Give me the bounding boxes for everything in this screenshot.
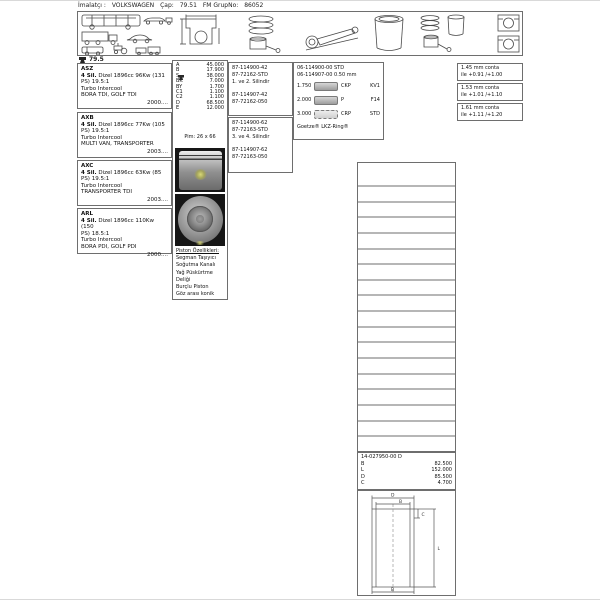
- bore-value: 79.51: [180, 2, 197, 9]
- manufacturer-value: VOLKSWAGEN: [112, 2, 154, 9]
- pin-size-label: Pim: 26 x 66: [173, 134, 227, 140]
- spec-row-empty: [358, 404, 455, 420]
- engine-cylinders: 4 Sil.: [81, 218, 97, 224]
- cylinder-liner-icon: [375, 16, 403, 51]
- engine-desc2: PS) 18.5:1: [81, 231, 168, 238]
- engine-year: 2000....: [81, 100, 168, 107]
- spec-row-empty: [358, 326, 455, 342]
- ring-row: 1.750 CKP KV1: [297, 80, 380, 93]
- engine-desc2: PS) 19.5:1: [81, 176, 168, 183]
- spec-row-empty: [358, 185, 455, 201]
- spec-row-empty: [358, 279, 455, 295]
- spec-row-empty: [358, 263, 455, 279]
- piston-part-number: 87-114900-62: [232, 120, 289, 127]
- piston-kit-icon: [421, 15, 464, 52]
- piston-set-box-2: 87-114900-62 87-72163-STD 3. ve 4. Silin…: [228, 117, 293, 173]
- engine-aspiration: Turbo Intercool: [81, 237, 168, 244]
- ring-set-box: 06-114900-00 STD 06-114907-00 0.50 mm 1.…: [293, 62, 384, 140]
- ring-row: 2.000 P F14: [297, 94, 380, 107]
- spec-row-empty: [358, 341, 455, 357]
- ring-row: 3.000 CRP STD: [297, 108, 380, 121]
- parts-overview-strip: [77, 11, 523, 56]
- piston-feature-item: Deliği: [176, 277, 219, 284]
- piston-part-number-050: 87-114907-42: [232, 92, 289, 99]
- group-value: 86052: [244, 2, 263, 9]
- dim-label-top-inner: B: [399, 499, 402, 505]
- engine-aspiration: Turbo Intercool: [81, 135, 168, 142]
- piston-diagram-icon: [180, 15, 219, 45]
- dim-label-length: L: [438, 546, 441, 552]
- engine-desc2: PS) 19.5:1: [81, 79, 168, 86]
- ring-part-number-050: 87-72163-050: [232, 154, 289, 161]
- spec-row-empty: [358, 310, 455, 326]
- engine-box-axb: AXB 4 Sil. Dizel 1896cc 77Kw (105 PS) 19…: [77, 112, 172, 158]
- engine-code: AXC: [81, 163, 168, 170]
- ring-profile-icon: [314, 82, 338, 91]
- spec-row-empty: [358, 420, 455, 436]
- dim-label-flange: C: [422, 512, 425, 518]
- engine-desc2: PS) 19.5:1: [81, 128, 168, 135]
- piston-features: Piston Özellikleri: Segman Taşıyıcı Soğu…: [176, 248, 219, 298]
- liner-part-number: 14-027950-00 D: [361, 454, 452, 461]
- piston-crown-image: [178, 196, 223, 243]
- bearing-shells-icon: [498, 15, 519, 52]
- liner-dim-row: D85.500: [361, 474, 452, 481]
- liner-spec-table: [357, 162, 456, 452]
- gasket-box-1: 1.45 mm conta ile +0.91 /+1.00: [457, 63, 523, 81]
- car-icon: [127, 35, 152, 43]
- cylinder-liner-drawing: D B C L B: [358, 491, 455, 595]
- engine-desc: Dizel 1896cc 63Kw (85: [98, 170, 161, 176]
- dimension-row: E12.000: [176, 106, 224, 111]
- ring-part-number: 87-72162-STD: [232, 72, 289, 79]
- cylinder-note: 1. ve 2. Silindir: [232, 79, 289, 86]
- engine-models: TRANSPORTER TDI: [81, 189, 168, 196]
- ring-grooves-image: [179, 155, 222, 162]
- engine-year: 2003....: [81, 197, 168, 204]
- spec-row-empty: [358, 294, 455, 310]
- engine-cylinders: 4 Sil.: [81, 170, 97, 176]
- catalog-header: İmalatçı : VOLKSWAGEN Çap: 79.51 FM Grup…: [78, 1, 524, 10]
- bore-label: Çap:: [160, 2, 174, 9]
- gasket-size: 1.61 mm conta: [461, 105, 519, 112]
- gasket-range: ile +1.01 /+1.10: [461, 92, 519, 99]
- piston-features-title: Piston Özellikleri:: [176, 248, 219, 255]
- right-spec-table-rows: [358, 185, 455, 451]
- group-label: FM GrupNo:: [203, 2, 238, 9]
- engine-desc: Dizel 1896cc 77Kw (105: [98, 122, 165, 128]
- ring-stack-icon: [249, 16, 280, 53]
- engine-aspiration: Turbo Intercool: [81, 183, 168, 190]
- spec-row-empty: [358, 388, 455, 404]
- ring-part-number-050: 87-72162-050: [232, 99, 289, 106]
- liner-drawing-box: D B C L B: [357, 490, 456, 596]
- gasket-range: ile +1.11 /+1.20: [461, 112, 519, 119]
- spec-row-empty: [358, 435, 455, 451]
- liner-dim-row: C4.700: [361, 480, 452, 487]
- ring-set-050: 06-114907-00 0.50 mm: [297, 72, 380, 79]
- car-trailer-icon: [144, 18, 172, 24]
- engine-models: BORA TDI, GOLF TDI: [81, 92, 168, 99]
- cylinder-note: 3. ve 4. Silindir: [232, 134, 289, 141]
- ring-set-std: 06-114900-00 STD: [297, 65, 380, 72]
- piston-stamp-icon: [177, 74, 185, 81]
- engine-code: ASZ: [81, 66, 168, 73]
- bus-icon: [82, 15, 140, 29]
- engine-models: MULTI VAN, TRANSPORTER: [81, 141, 168, 148]
- engine-models: BORA PDI, GOLF PDI: [81, 244, 168, 251]
- spec-row-empty: [358, 373, 455, 389]
- engine-year: 2000....: [81, 252, 168, 259]
- piston-part-number-050: 87-114907-62: [232, 147, 289, 154]
- engine-desc: Dizel 1896cc 96Kw (131: [98, 73, 165, 79]
- dim-label-top: D: [391, 493, 395, 499]
- engine-code: ARL: [81, 211, 168, 218]
- spec-row-empty: [358, 357, 455, 373]
- spec-row-empty: [358, 216, 455, 232]
- engine-aspiration: Turbo Intercool: [81, 86, 168, 93]
- bowl-center-image: [196, 215, 203, 222]
- gasket-size: 1.45 mm conta: [461, 65, 519, 72]
- piston-set-box-1: 87-114900-42 87-72162-STD 1. ve 2. Silin…: [228, 62, 293, 116]
- spec-table-header: [358, 163, 455, 185]
- dim-label-bottom: B: [391, 587, 394, 593]
- engine-box-asz: ASZ 4 Sil. Dizel 1896cc 96Kw (131 PS) 19…: [77, 63, 172, 109]
- engine-year: 2003....: [81, 149, 168, 156]
- truck-icon: [82, 32, 117, 45]
- piston-side-photo: [175, 148, 225, 192]
- liner-dim-row: L152.000: [361, 467, 452, 474]
- trailer-truck-icon: [136, 47, 160, 55]
- piston-feature-item: Burçlu Piston: [176, 284, 219, 291]
- engine-cylinders: 4 Sil.: [81, 73, 97, 79]
- gasket-box-2: 1.53 mm conta ile +1.01 /+1.10: [457, 83, 523, 101]
- gasket-box-3: 1.61 mm conta ile +1.11 /+1.20: [457, 103, 523, 121]
- ring-part-number: 87-72163-STD: [232, 127, 289, 134]
- liner-dim-row: B82.500: [361, 461, 452, 468]
- gasket-range: ile +0.91 /+1.00: [461, 72, 519, 79]
- van-icon: [82, 47, 103, 55]
- piston-dimensions-panel: A45.000 B17.900 S38.000 BK7.000 BY1.700 …: [172, 60, 228, 300]
- piston-feature-item: Göz arası konik: [176, 291, 219, 298]
- ring-profile-icon: [314, 96, 338, 105]
- engine-cylinders: 4 Sil.: [81, 122, 97, 128]
- parts-strip-drawing: [78, 12, 522, 55]
- engine-box-axc: AXC 4 Sil. Dizel 1896cc 63Kw (85 PS) 19.…: [77, 160, 172, 206]
- piston-part-number: 87-114900-42: [232, 65, 289, 72]
- tractor-icon: [114, 43, 127, 54]
- spec-row-empty: [358, 201, 455, 217]
- photo-glint: [195, 241, 205, 245]
- piston-body-image: [179, 151, 222, 190]
- piston-top-photo: [175, 194, 225, 246]
- liner-values-box: 14-027950-00 D B82.500 L152.000 D85.500 …: [357, 452, 456, 490]
- engine-code: AXB: [81, 115, 168, 122]
- ring-brand-note: Goetze® LKZ-Ring®: [297, 124, 380, 131]
- piston-feature-item: Soğutma Kanalı: [176, 262, 219, 269]
- engine-box-arl: ARL 4 Sil. Dizel 1896cc 110Kw (150 PS) 1…: [77, 208, 172, 254]
- ring-profile-icon: [314, 110, 338, 119]
- gasket-size: 1.53 mm conta: [461, 85, 519, 92]
- piston-feature-item: Yağ Püskürtme: [176, 270, 219, 277]
- spec-row-empty: [358, 232, 455, 248]
- manufacturer-label: İmalatçı :: [78, 2, 106, 9]
- spec-row-empty: [358, 248, 455, 264]
- connecting-rod-icon: [306, 27, 358, 50]
- dimension-list: A45.000 B17.900 S38.000 BK7.000 BY1.700 …: [173, 61, 227, 112]
- pin-bore-highlight: [194, 169, 207, 180]
